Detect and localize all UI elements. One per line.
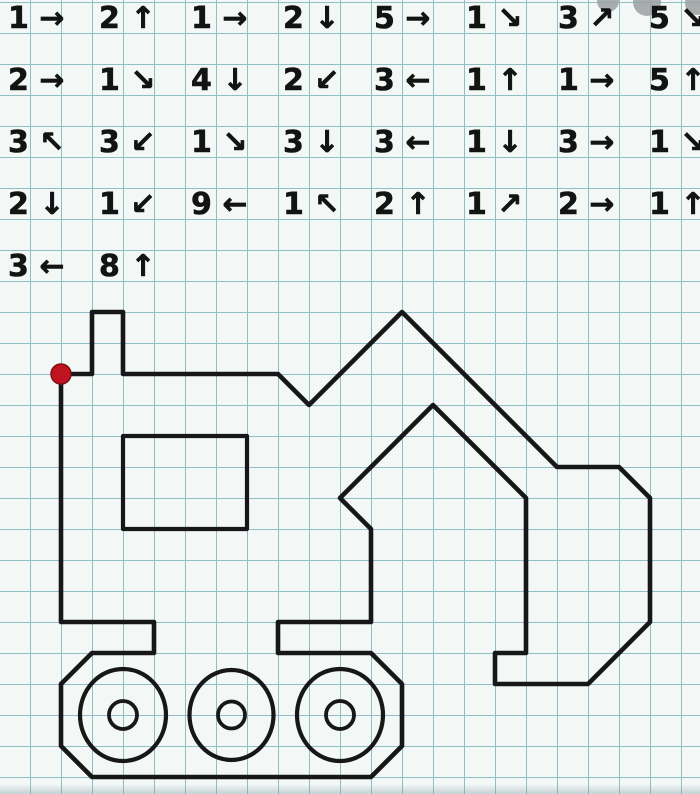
instruction-step: 2 →: [558, 187, 614, 222]
bottom-edge-shadow: [0, 784, 700, 794]
instruction-step: 9 ←: [191, 187, 247, 222]
instruction-step: 3 ↗: [558, 1, 614, 36]
start-dot: [51, 364, 71, 384]
instruction-step: 3 ←: [374, 125, 430, 160]
instruction-step: 1 ↘: [191, 125, 247, 160]
instruction-step: 1 ↘: [649, 125, 700, 160]
instruction-step: 2 ↓: [283, 1, 339, 36]
instruction-step: 1 →: [8, 1, 64, 36]
instruction-step: 1 →: [558, 63, 614, 98]
instruction-step: 2 ↓: [8, 187, 64, 222]
instruction-step: 1 ↑: [649, 187, 700, 222]
instruction-step: 3 ↖: [8, 125, 64, 160]
instruction-step: 4 ↓: [191, 63, 247, 98]
instruction-step: 1 ↙: [99, 187, 155, 222]
instruction-step: 1 →: [191, 1, 247, 36]
instruction-step: 8 ↑: [99, 249, 155, 284]
instruction-step: 3 →: [558, 125, 614, 160]
instruction-step: 2 ↑: [374, 187, 430, 222]
instruction-step: 5 ↑: [649, 63, 700, 98]
instruction-step: 3 ←: [374, 63, 430, 98]
graphic-dictation-canvas: 1 → 2 ↑ 1 → 2 ↓ 5 → 1 ↘ 3 ↗ 5 ↘ 2 → 1 ↘ …: [0, 0, 700, 794]
instruction-step: 1 ↗: [466, 187, 522, 222]
instruction-step: 3 ←: [8, 249, 64, 284]
instruction-step: 5 →: [374, 1, 430, 36]
instruction-step: 1 ↖: [283, 187, 339, 222]
instruction-step: 1 ↓: [466, 125, 522, 160]
instruction-step: 3 ↙: [99, 125, 155, 160]
instruction-step: 2 →: [8, 63, 64, 98]
instruction-step: 1 ↘: [99, 63, 155, 98]
instruction-step: 1 ↑: [466, 63, 522, 98]
instruction-step: 1 ↘: [466, 1, 522, 36]
instruction-step: 2 ↑: [99, 1, 155, 36]
worksheet-sheet: 1 → 2 ↑ 1 → 2 ↓ 5 → 1 ↘ 3 ↗ 5 ↘ 2 → 1 ↘ …: [0, 0, 700, 794]
instruction-step: 3 ↓: [283, 125, 339, 160]
instruction-step: 5 ↘: [649, 1, 700, 36]
instruction-step: 2 ↙: [283, 63, 339, 98]
